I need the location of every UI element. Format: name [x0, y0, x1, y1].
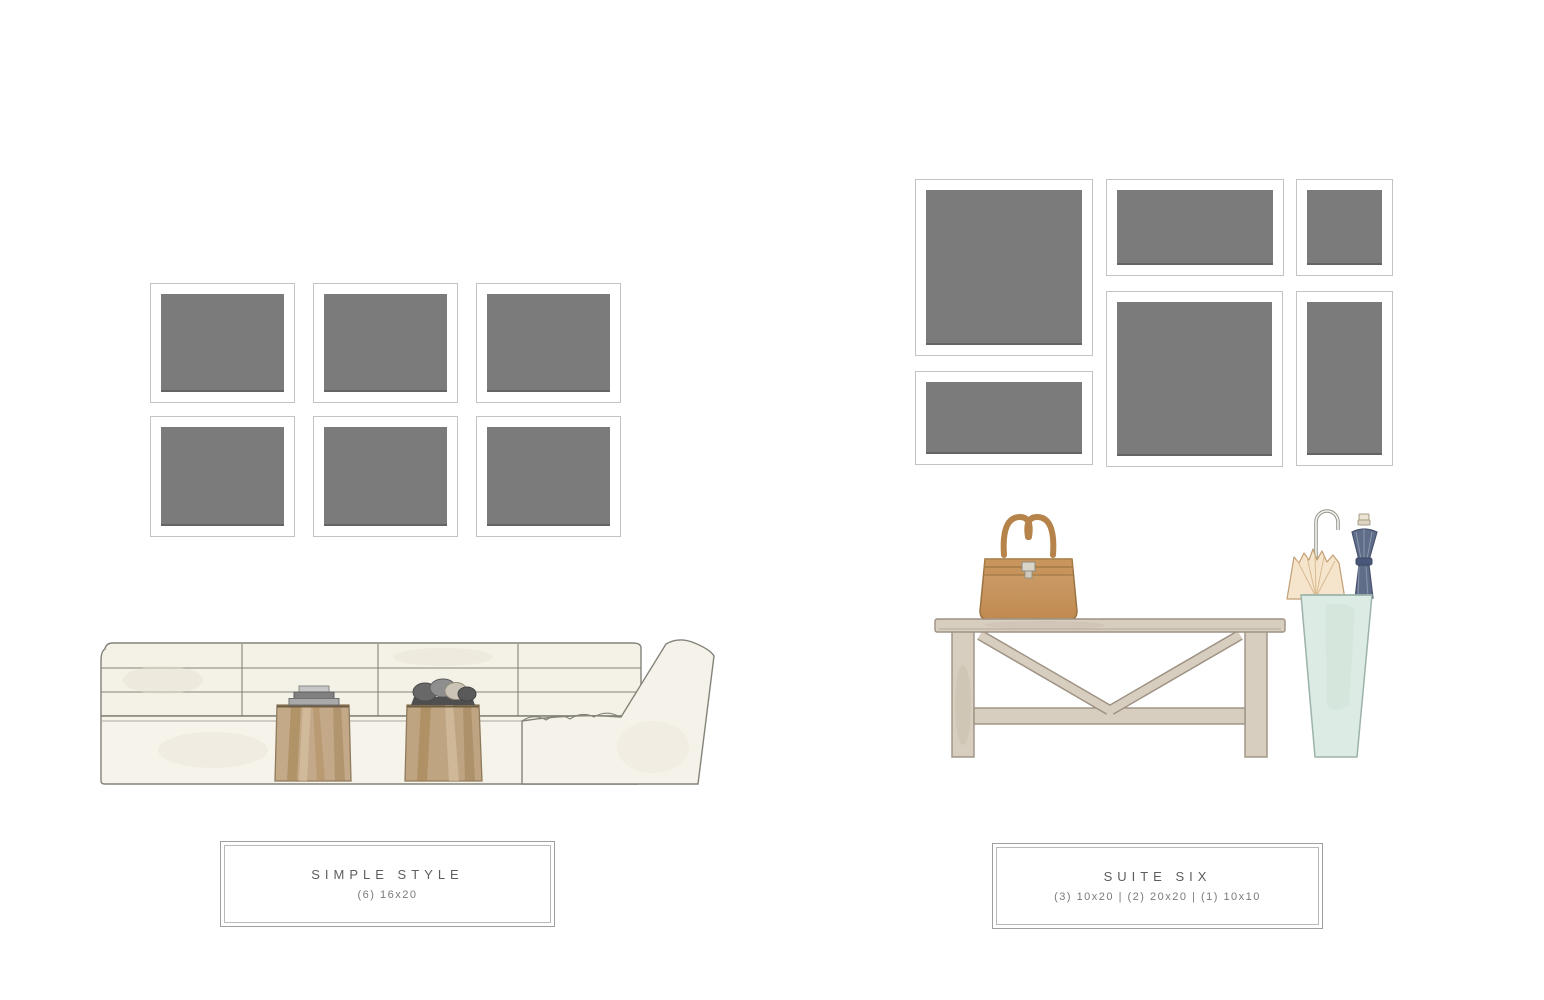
console-illustration [925, 505, 1395, 765]
cream-umbrella [1287, 511, 1345, 599]
gallery-frame-20x20 [1106, 291, 1283, 467]
gallery-frame-16x20 [150, 283, 295, 403]
gallery-frame-16x20 [476, 283, 621, 403]
frame-art [487, 427, 610, 526]
gallery-frame-20x20 [915, 179, 1093, 356]
left-caption-subtitle: (6) 16x20 [358, 889, 418, 901]
frame-art [1117, 302, 1272, 456]
left-caption-box: SIMPLE STYLE (6) 16x20 [220, 841, 555, 927]
right-caption-title: SUITE SIX [1104, 869, 1212, 884]
pedestal-table-stones [405, 679, 482, 781]
left-caption-title: SIMPLE STYLE [311, 867, 463, 882]
frame-art [161, 427, 284, 526]
navy-umbrella [1352, 514, 1377, 598]
frame-art [161, 294, 284, 392]
frame-art [1117, 190, 1273, 265]
frame-art [926, 190, 1082, 345]
umbrella-stand [1301, 595, 1372, 757]
bag-clasp-hardware [1022, 562, 1035, 571]
frame-art [1307, 302, 1382, 455]
gallery-frame-10x20 [1106, 179, 1284, 276]
frame-art [487, 294, 610, 392]
sofa-illustration [93, 635, 723, 790]
gallery-frame-16x20 [313, 283, 458, 403]
right-caption-subtitle: (3) 10x20 | (2) 20x20 | (1) 10x10 [1054, 891, 1261, 903]
console-table [935, 619, 1285, 757]
handbag [980, 517, 1077, 620]
left-caption-inner: SIMPLE STYLE (6) 16x20 [224, 845, 551, 923]
frame-art [1307, 190, 1382, 265]
gallery-frame-16x20 [150, 416, 295, 537]
right-caption-inner: SUITE SIX (3) 10x20 | (2) 20x20 | (1) 10… [996, 847, 1319, 925]
frame-art [926, 382, 1082, 454]
frame-art [324, 294, 447, 392]
gallery-frame-10x20 [915, 371, 1093, 465]
gallery-frame-10x10 [1296, 179, 1393, 276]
gallery-frame-16x20 [476, 416, 621, 537]
gallery-frame-10x20 [1296, 291, 1393, 466]
gallery-wall-layout-guide: SIMPLE STYLE (6) 16x20 SUITE SIX (3) 10x… [0, 0, 1544, 1000]
frame-art [324, 427, 447, 526]
right-caption-box: SUITE SIX (3) 10x20 | (2) 20x20 | (1) 10… [992, 843, 1323, 929]
gallery-frame-16x20 [313, 416, 458, 537]
